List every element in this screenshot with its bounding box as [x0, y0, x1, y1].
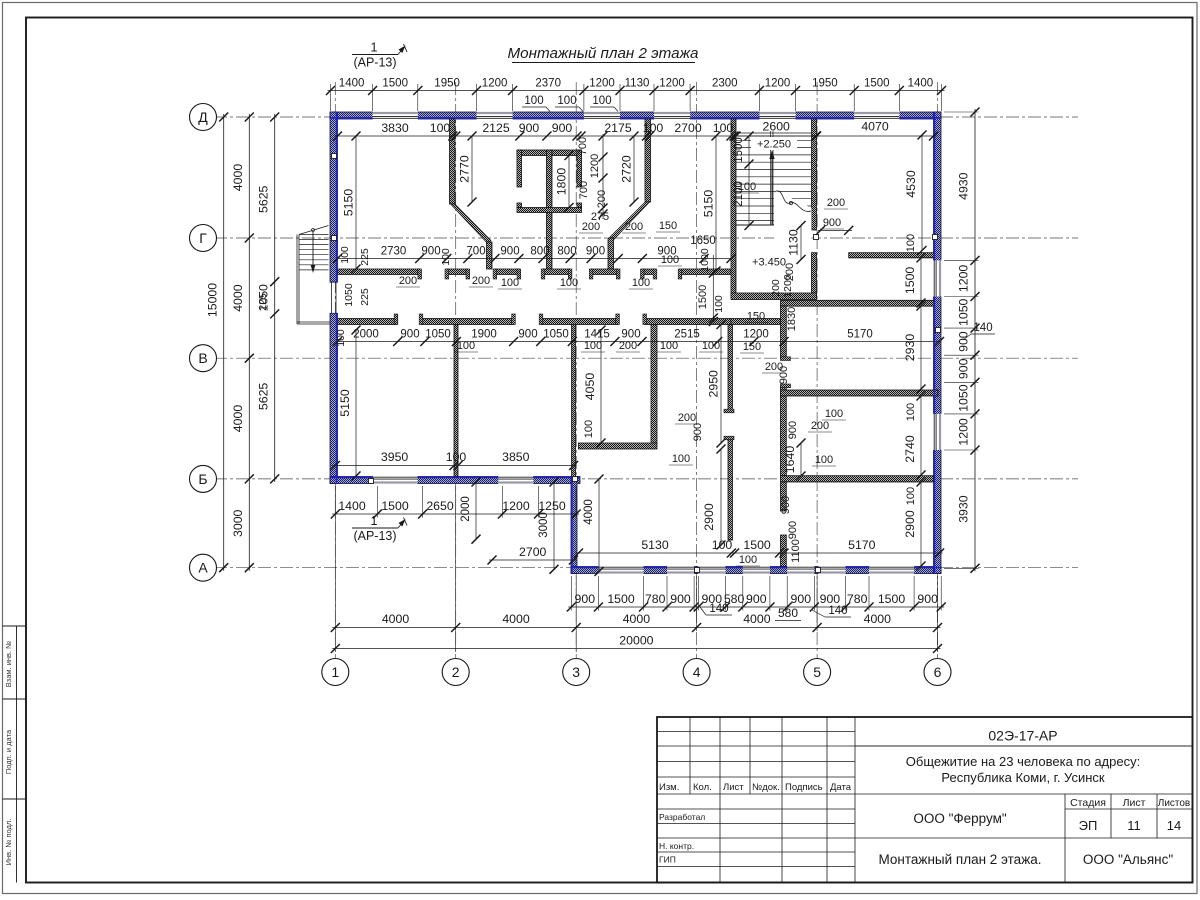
svg-text:780: 780 [645, 592, 666, 606]
svg-text:Разработал: Разработал [659, 812, 705, 822]
svg-text:100: 100 [660, 340, 678, 352]
svg-text:900: 900 [518, 329, 537, 341]
svg-text:100: 100 [440, 248, 452, 266]
svg-text:1500: 1500 [607, 592, 635, 606]
svg-text:1415: 1415 [584, 329, 610, 341]
svg-text:100: 100 [643, 121, 664, 135]
svg-text:100: 100 [905, 403, 917, 421]
svg-text:1: 1 [331, 664, 339, 680]
svg-text:900: 900 [957, 331, 971, 352]
svg-text:5150: 5150 [338, 389, 352, 417]
svg-text:150: 150 [659, 220, 677, 232]
svg-text:900: 900 [421, 246, 440, 258]
svg-text:1130: 1130 [625, 78, 650, 90]
svg-text:580: 580 [778, 606, 798, 620]
svg-text:5130: 5130 [641, 538, 669, 552]
svg-text:5625: 5625 [256, 185, 270, 213]
svg-text:1100: 1100 [790, 539, 802, 563]
svg-text:4930: 4930 [957, 172, 971, 200]
svg-text:900: 900 [791, 592, 812, 606]
svg-text:2740: 2740 [903, 435, 917, 463]
svg-text:100: 100 [905, 487, 917, 505]
svg-text:1500: 1500 [864, 78, 890, 90]
svg-text:225: 225 [257, 293, 269, 311]
svg-text:2950: 2950 [707, 370, 721, 398]
svg-text:1130: 1130 [787, 229, 801, 256]
svg-text:100: 100 [501, 277, 519, 289]
svg-text:200: 200 [770, 279, 782, 297]
svg-text:2930: 2930 [903, 334, 917, 362]
svg-text:+3.450: +3.450 [752, 257, 786, 269]
svg-text:200: 200 [811, 420, 829, 432]
svg-text:100: 100 [557, 95, 576, 107]
svg-text:1500: 1500 [381, 499, 409, 513]
svg-text:1200: 1200 [957, 265, 971, 293]
svg-text:100: 100 [815, 454, 833, 466]
svg-text:Д: Д [198, 109, 208, 125]
svg-text:1: 1 [371, 41, 378, 55]
svg-text:700: 700 [466, 246, 485, 258]
svg-text:Монтажный план 2 этажа.: Монтажный план 2 этажа. [879, 852, 1042, 867]
svg-text:4530: 4530 [904, 170, 918, 198]
svg-text:1400: 1400 [338, 499, 366, 513]
svg-text:1950: 1950 [434, 78, 460, 90]
svg-text:100: 100 [584, 340, 602, 352]
svg-text:1830: 1830 [786, 307, 798, 331]
svg-text:1640: 1640 [783, 446, 797, 474]
svg-text:3: 3 [572, 664, 580, 680]
svg-text:Общежитие на 23 человека по ад: Общежитие на 23 человека по адресу: [906, 754, 1140, 769]
svg-text:1500: 1500 [697, 285, 709, 309]
svg-text:1200: 1200 [482, 78, 508, 90]
svg-text:900: 900 [621, 329, 640, 341]
svg-text:Г: Г [199, 230, 207, 246]
svg-text:4000: 4000 [583, 499, 595, 525]
svg-text:1200: 1200 [659, 78, 685, 90]
svg-text:15000: 15000 [206, 283, 220, 317]
svg-text:100: 100 [713, 295, 725, 313]
svg-text:2300: 2300 [712, 78, 738, 90]
svg-text:1200: 1200 [743, 329, 769, 341]
svg-text:1000: 1000 [699, 248, 711, 272]
svg-text:100: 100 [672, 453, 690, 465]
svg-text:Инв. № подл.: Инв. № подл. [4, 819, 13, 866]
svg-text:2600: 2600 [763, 120, 791, 134]
svg-text:14: 14 [1167, 818, 1181, 833]
svg-text:100: 100 [457, 340, 475, 352]
svg-text:1050: 1050 [957, 298, 971, 326]
svg-text:+2.250: +2.250 [757, 139, 791, 151]
svg-text:100: 100 [825, 408, 843, 420]
svg-text:900: 900 [692, 423, 704, 441]
svg-text:200: 200 [582, 221, 600, 233]
svg-text:100: 100 [713, 121, 734, 135]
svg-text:Н. контр.: Н. контр. [659, 841, 694, 851]
svg-text:1050: 1050 [543, 329, 569, 341]
svg-text:900: 900 [787, 421, 799, 439]
svg-text:20000: 20000 [619, 634, 653, 648]
svg-text:2650: 2650 [426, 499, 454, 513]
svg-text:100: 100 [592, 95, 611, 107]
svg-text:2125: 2125 [482, 121, 510, 135]
svg-text:1: 1 [371, 514, 378, 528]
svg-text:5150: 5150 [702, 190, 716, 218]
svg-text:5170: 5170 [848, 538, 876, 552]
svg-text:Подпись: Подпись [785, 782, 823, 793]
svg-text:3930: 3930 [957, 495, 971, 523]
svg-text:Кол.: Кол. [693, 782, 712, 793]
svg-text:3830: 3830 [381, 121, 409, 135]
svg-text:Стадия: Стадия [1070, 797, 1106, 809]
svg-text:1650: 1650 [690, 235, 716, 247]
svg-text:1200: 1200 [589, 78, 615, 90]
svg-text:Республика Коми, г. Усинск: Республика Коми, г. Усинск [941, 770, 1104, 785]
svg-text:2720: 2720 [620, 155, 634, 183]
svg-text:1900: 1900 [471, 329, 497, 341]
svg-text:140: 140 [709, 603, 728, 615]
svg-text:В: В [198, 350, 207, 366]
svg-text:3000: 3000 [231, 509, 245, 537]
svg-text:100: 100 [524, 95, 543, 107]
svg-text:2730: 2730 [381, 246, 407, 258]
svg-text:780: 780 [847, 592, 868, 606]
svg-text:1200: 1200 [765, 78, 791, 90]
svg-text:700: 700 [578, 181, 590, 199]
svg-text:2900: 2900 [702, 503, 716, 531]
svg-text:2770: 2770 [458, 155, 472, 183]
svg-text:1500: 1500 [743, 538, 771, 552]
svg-text:100: 100 [702, 340, 720, 352]
svg-text:900: 900 [519, 121, 540, 135]
svg-text:2: 2 [452, 664, 460, 680]
svg-text:800: 800 [530, 246, 549, 258]
svg-text:5170: 5170 [847, 329, 873, 341]
svg-text:ООО "Альянс": ООО "Альянс" [1083, 852, 1173, 867]
svg-text:900: 900 [552, 121, 573, 135]
svg-text:140: 140 [973, 322, 992, 334]
svg-text:200: 200 [678, 412, 696, 424]
svg-text:02Э-17-АР: 02Э-17-АР [988, 728, 1057, 744]
svg-text:900: 900 [820, 592, 841, 606]
svg-text:900: 900 [917, 592, 938, 606]
svg-text:Дата: Дата [830, 782, 852, 793]
svg-text:100: 100 [661, 254, 679, 266]
svg-text:ЭП: ЭП [1079, 818, 1098, 833]
svg-text:4070: 4070 [861, 120, 889, 134]
svg-text:100: 100 [583, 420, 595, 438]
svg-text:1500: 1500 [903, 267, 917, 295]
svg-text:1200: 1200 [957, 418, 971, 446]
svg-text:900: 900 [500, 246, 519, 258]
svg-text:4000: 4000 [864, 612, 892, 626]
svg-text:Б: Б [198, 471, 207, 487]
svg-text:100: 100 [905, 234, 917, 252]
svg-text:100: 100 [446, 450, 467, 464]
svg-text:1050: 1050 [425, 329, 451, 341]
svg-text:А: А [198, 560, 208, 576]
svg-text:4000: 4000 [502, 612, 530, 626]
svg-text:2900: 2900 [903, 510, 917, 538]
svg-text:Взам. инв. №: Взам. инв. № [4, 641, 13, 687]
svg-text:225: 225 [359, 288, 371, 306]
svg-text:900: 900 [823, 217, 841, 229]
svg-text:100: 100 [712, 538, 733, 552]
svg-text:200: 200 [619, 340, 637, 352]
svg-text:1050: 1050 [957, 384, 971, 412]
svg-text:5: 5 [813, 664, 821, 680]
svg-text:1050: 1050 [343, 283, 355, 307]
svg-text:1200: 1200 [502, 499, 530, 513]
svg-text:3950: 3950 [381, 450, 409, 464]
svg-text:№док.: №док. [752, 782, 780, 793]
svg-text:1950: 1950 [812, 78, 838, 90]
svg-text:4: 4 [693, 664, 701, 680]
svg-text:2000: 2000 [460, 496, 472, 522]
svg-text:1500: 1500 [733, 137, 745, 163]
svg-text:1250: 1250 [538, 499, 566, 513]
svg-text:1400: 1400 [908, 78, 934, 90]
svg-text:1200: 1200 [589, 154, 601, 178]
svg-text:200: 200 [827, 197, 845, 209]
svg-text:(АР-13): (АР-13) [353, 56, 396, 70]
svg-text:900: 900 [670, 592, 691, 606]
svg-text:1200: 1200 [782, 274, 794, 298]
svg-text:Подп. и дата: Подп. и дата [4, 729, 13, 774]
svg-text:6: 6 [934, 664, 942, 680]
svg-text:3000: 3000 [538, 512, 550, 538]
svg-text:3850: 3850 [502, 450, 530, 464]
svg-text:900: 900 [586, 246, 605, 258]
svg-text:2175: 2175 [604, 121, 632, 135]
svg-text:2515: 2515 [674, 329, 700, 341]
svg-text:Монтажный план 2 этажа: Монтажный план 2 этажа [508, 45, 699, 62]
svg-text:200: 200 [596, 190, 608, 208]
svg-text:4000: 4000 [231, 284, 245, 312]
svg-text:200: 200 [472, 275, 490, 287]
svg-text:900: 900 [746, 592, 767, 606]
svg-text:Листов: Листов [1158, 798, 1191, 809]
svg-text:ООО "Феррум": ООО "Феррум" [913, 811, 1007, 826]
svg-text:ГИП: ГИП [659, 855, 676, 865]
svg-text:150: 150 [747, 311, 765, 323]
svg-text:4050: 4050 [583, 373, 597, 401]
svg-text:1500: 1500 [382, 78, 408, 90]
svg-text:800: 800 [557, 246, 576, 258]
svg-text:200: 200 [625, 221, 643, 233]
svg-text:4000: 4000 [382, 612, 410, 626]
svg-text:900: 900 [780, 496, 792, 514]
svg-text:1400: 1400 [339, 78, 365, 90]
svg-text:100: 100 [339, 246, 351, 264]
svg-text:4000: 4000 [231, 164, 245, 192]
svg-text:2700: 2700 [519, 545, 547, 559]
svg-text:900: 900 [400, 329, 419, 341]
svg-text:150: 150 [743, 341, 761, 353]
svg-text:1500: 1500 [878, 592, 906, 606]
svg-text:100: 100 [632, 277, 650, 289]
svg-text:100: 100 [430, 121, 451, 135]
svg-text:100: 100 [739, 554, 757, 566]
svg-text:4000: 4000 [743, 612, 771, 626]
svg-text:Изм.: Изм. [659, 782, 679, 793]
svg-text:11: 11 [1127, 818, 1141, 833]
svg-text:100: 100 [560, 277, 578, 289]
svg-text:900: 900 [957, 358, 971, 379]
svg-text:(АР-13): (АР-13) [353, 529, 396, 543]
svg-text:200: 200 [399, 275, 417, 287]
svg-text:140: 140 [828, 605, 847, 617]
svg-text:900: 900 [575, 592, 596, 606]
svg-text:2370: 2370 [535, 78, 561, 90]
svg-text:2000: 2000 [353, 329, 379, 341]
svg-text:100: 100 [738, 181, 756, 193]
svg-text:1800: 1800 [555, 168, 569, 196]
svg-text:Лист: Лист [1123, 797, 1146, 809]
svg-text:4000: 4000 [623, 612, 651, 626]
svg-text:200: 200 [765, 361, 783, 373]
svg-text:Лист: Лист [723, 782, 744, 793]
svg-text:2700: 2700 [674, 121, 702, 135]
svg-text:5150: 5150 [342, 189, 356, 217]
svg-text:225: 225 [359, 248, 371, 266]
svg-text:700: 700 [577, 137, 589, 155]
svg-text:5625: 5625 [256, 383, 270, 411]
svg-text:900: 900 [787, 521, 799, 539]
svg-text:4000: 4000 [231, 405, 245, 433]
